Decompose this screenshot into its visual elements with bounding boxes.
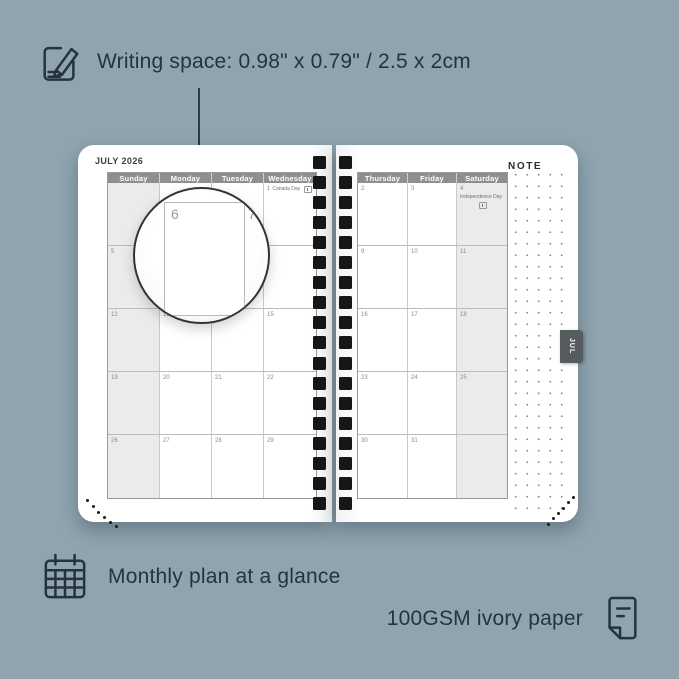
day-cell: 15 — [264, 309, 316, 372]
day-cell: 19 — [108, 372, 160, 435]
magnifier-circle: 6 7 — [133, 187, 270, 324]
writing-space-annotation: Writing space: 0.98" x 0.79" / 2.5 x 2cm — [38, 38, 471, 85]
day-header: Tuesday — [212, 173, 264, 183]
binding-hole — [339, 417, 352, 430]
month-tab-label: JUL — [568, 338, 575, 354]
binding-hole — [339, 176, 352, 189]
binding-hole — [313, 477, 326, 490]
day-header: Thursday — [358, 173, 408, 183]
binding-hole — [313, 196, 326, 209]
day-number: 25 — [460, 375, 467, 381]
day-number: 23 — [361, 375, 368, 381]
day-header: Monday — [160, 173, 212, 183]
binding-hole — [339, 316, 352, 329]
binding-hole — [339, 156, 352, 169]
note-label: NOTE — [508, 161, 545, 172]
day-number: 29 — [267, 438, 274, 444]
day-cell: 30 — [358, 435, 408, 498]
binding-hole — [339, 497, 352, 510]
day-cell: 4Independence Day — [457, 183, 507, 246]
day-number: 26 — [111, 438, 118, 444]
binding-hole — [339, 477, 352, 490]
stitch-dot — [92, 505, 95, 508]
holiday-label: Canada Day — [272, 186, 300, 192]
day-number: 11 — [460, 249, 466, 255]
writing-space-text: Writing space: 0.98" x 0.79" / 2.5 x 2cm — [97, 50, 471, 74]
pencil-note-icon — [38, 38, 82, 85]
day-cell: 31 — [408, 435, 457, 498]
binding-hole — [339, 196, 352, 209]
binding-hole — [339, 397, 352, 410]
day-cell: 24 — [408, 372, 457, 435]
binding-hole — [313, 417, 326, 430]
day-cell: 29 — [264, 435, 316, 498]
day-number: 22 — [267, 375, 274, 381]
binding-hole — [339, 276, 352, 289]
calendar-grid-icon — [42, 552, 88, 602]
binding-hole — [313, 437, 326, 450]
right-grid: ThursdayFridaySaturday234Independence Da… — [357, 172, 508, 499]
binding-hole — [339, 336, 352, 349]
day-cell: 2 — [358, 183, 408, 246]
binding-hole — [313, 316, 326, 329]
stitch-dot — [109, 521, 112, 524]
stitch-dot — [115, 525, 118, 528]
binding-hole — [339, 457, 352, 470]
stitch-dot — [557, 512, 560, 515]
day-number: 30 — [361, 438, 368, 444]
day-number: 2 — [361, 186, 364, 192]
day-cell: 11 — [457, 246, 507, 309]
day-number: 5 — [111, 249, 114, 255]
binding-hole — [313, 216, 326, 229]
stitch-dot — [103, 516, 106, 519]
binding-hole — [313, 156, 326, 169]
day-cell: 1Canada Day — [264, 183, 316, 246]
day-number: 24 — [411, 375, 418, 381]
stitch-dot — [97, 511, 100, 514]
stitch-dot — [562, 507, 565, 510]
day-header: Friday — [408, 173, 457, 183]
binding-hole — [313, 377, 326, 390]
day-cell: 12 — [108, 309, 160, 372]
day-header: Wednesday — [264, 173, 316, 183]
binding-hole — [313, 236, 326, 249]
day-number: 31 — [411, 438, 418, 444]
day-cell: 17 — [408, 309, 457, 372]
stitch-dot — [547, 523, 550, 526]
planner-right-page: ThursdayFridaySaturday234Independence Da… — [336, 145, 578, 522]
day-cell — [457, 435, 507, 498]
binding-hole — [313, 176, 326, 189]
day-cell: 22 — [264, 372, 316, 435]
day-cell: 10 — [408, 246, 457, 309]
day-cell: 28 — [212, 435, 264, 498]
stitch-dot — [567, 501, 570, 504]
binding-hole — [313, 296, 326, 309]
stitch-dot — [86, 499, 89, 502]
month-tab-jul: JUL — [560, 330, 583, 363]
day-number: 4 — [460, 186, 463, 192]
binding-hole — [339, 377, 352, 390]
binding-hole — [339, 236, 352, 249]
paper-annotation: 100GSM ivory paper — [387, 592, 642, 646]
day-cell: 26 — [108, 435, 160, 498]
magnified-adjacent-day: 7 — [248, 206, 256, 222]
month-title: JULY 2026 — [95, 156, 143, 166]
day-cell: 21 — [212, 372, 264, 435]
day-number: 9 — [361, 249, 364, 255]
day-cell: 25 — [457, 372, 507, 435]
day-number: 28 — [215, 438, 222, 444]
binding-hole — [313, 276, 326, 289]
magnified-day-number: 6 — [171, 206, 179, 222]
stitch-dot — [572, 496, 575, 499]
day-number: 3 — [411, 186, 414, 192]
day-number: 20 — [163, 375, 170, 381]
paper-text: 100GSM ivory paper — [387, 607, 583, 631]
binding-hole — [339, 256, 352, 269]
holiday-label: Independence Day — [460, 194, 502, 200]
monthly-plan-annotation: Monthly plan at a glance — [42, 552, 340, 602]
day-number: 17 — [411, 312, 418, 318]
day-cell: 3 — [408, 183, 457, 246]
day-number: 16 — [361, 312, 368, 318]
day-number: 12 — [111, 312, 118, 318]
day-cell: 23 — [358, 372, 408, 435]
binding-hole — [313, 357, 326, 370]
day-number: 21 — [215, 375, 222, 381]
day-cell: 27 — [160, 435, 212, 498]
binding-hole — [313, 336, 326, 349]
binding-hole — [313, 397, 326, 410]
day-cell: 9 — [358, 246, 408, 309]
monthly-plan-text: Monthly plan at a glance — [108, 565, 340, 589]
binding-hole — [313, 497, 326, 510]
day-number: 18 — [460, 312, 467, 318]
flag-icon — [304, 186, 312, 193]
day-header: Saturday — [457, 173, 507, 183]
binding-hole — [313, 256, 326, 269]
binding-hole — [339, 296, 352, 309]
day-number: 10 — [411, 249, 418, 255]
binding-hole — [313, 457, 326, 470]
day-cell: 20 — [160, 372, 212, 435]
day-header: Sunday — [108, 173, 160, 183]
day-number: 19 — [111, 375, 118, 381]
day-cell: 8 — [264, 246, 316, 309]
day-number: 27 — [163, 438, 170, 444]
binding-hole — [339, 437, 352, 450]
day-number: 1 — [267, 186, 270, 192]
day-number: 15 — [267, 312, 274, 318]
stitch-dot — [552, 517, 555, 520]
flag-icon — [479, 202, 487, 209]
product-image: Writing space: 0.98" x 0.79" / 2.5 x 2cm… — [0, 0, 679, 679]
binding-hole — [339, 216, 352, 229]
day-cell: 18 — [457, 309, 507, 372]
folded-paper-icon — [600, 592, 642, 646]
day-cell: 16 — [358, 309, 408, 372]
binding-hole — [339, 357, 352, 370]
